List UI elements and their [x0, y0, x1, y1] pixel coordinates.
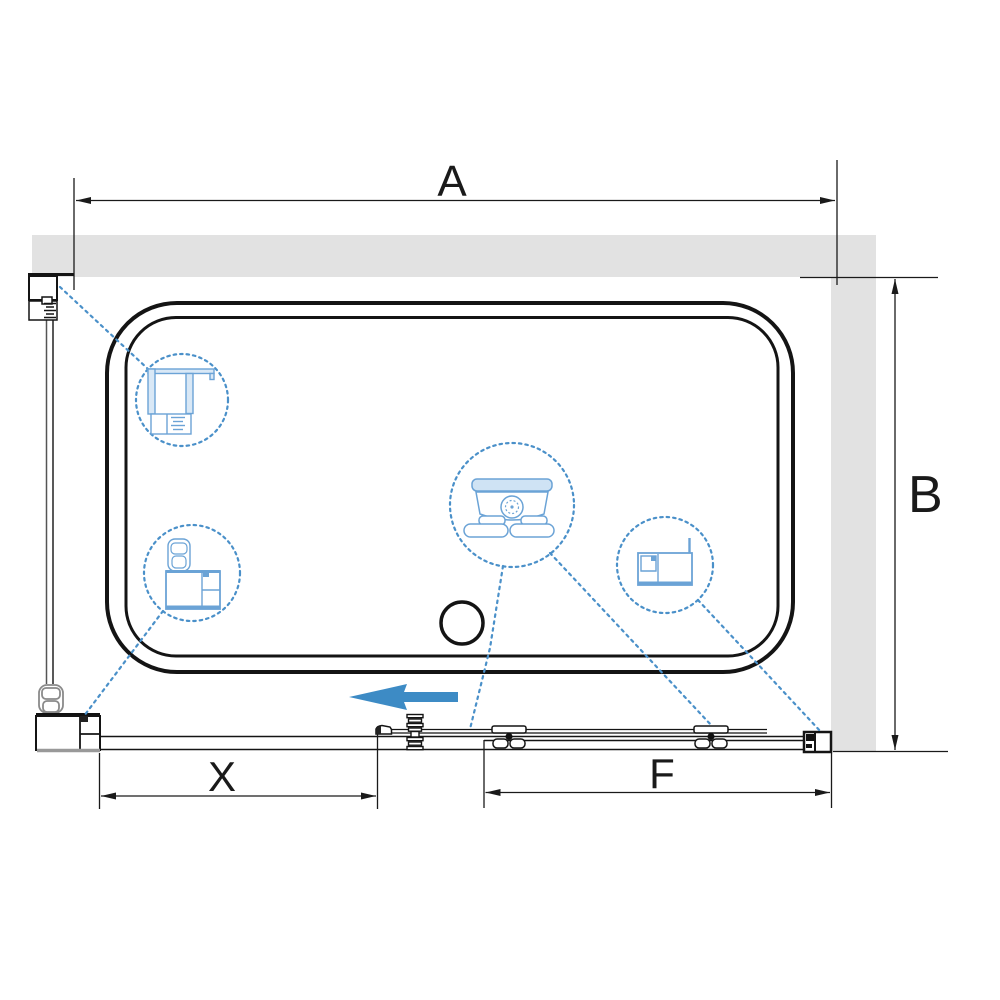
- callout-circles: [136, 354, 713, 621]
- leader-line: [60, 287, 148, 369]
- side-wall: [831, 277, 876, 752]
- arrowhead-icon: [486, 789, 501, 796]
- leader-line: [698, 600, 822, 733]
- leader-line: [470, 566, 503, 729]
- top-left-wall-profile: [28, 275, 74, 321]
- dimension-f-label: F: [649, 750, 675, 797]
- tray-outer-edge: [107, 303, 793, 672]
- bottom-left-corner-profile: [36, 685, 100, 751]
- arrowhead-icon: [76, 197, 91, 204]
- glass-clamp-gasket: [39, 685, 63, 713]
- arrowhead-icon: [820, 197, 835, 204]
- left-side-panel: [28, 275, 100, 751]
- door-guide-bracket: [376, 726, 392, 735]
- diagram-canvas: A B X F: [0, 0, 1000, 1000]
- shower-tray: [107, 303, 793, 672]
- adjustment-screw-icon: [407, 715, 423, 750]
- bottom-rail-detail-icon: [638, 538, 692, 585]
- slide-direction-arrow-icon: [349, 684, 458, 710]
- dimension-x-label: X: [208, 753, 236, 800]
- walls: [32, 235, 876, 752]
- arrowhead-icon: [101, 793, 116, 800]
- wall-profile-detail-icon: [148, 369, 214, 434]
- arrowhead-icon: [892, 735, 899, 750]
- drain-icon: [441, 602, 483, 644]
- bottom-right-wall-bracket: [804, 732, 831, 752]
- arrowhead-icon: [361, 793, 376, 800]
- bottom-track-assembly: [100, 715, 831, 753]
- shower-enclosure-drawing: A B X F: [0, 0, 1000, 1000]
- dimension-x: [100, 734, 378, 809]
- back-wall: [32, 235, 876, 277]
- leader-line: [84, 611, 163, 716]
- roller-carriage-detail-icon: [464, 479, 554, 537]
- dimension-a-label: A: [437, 157, 467, 206]
- corner-profile-detail-icon: [166, 539, 220, 609]
- dimension-b-label: B: [908, 466, 943, 524]
- arrowhead-icon: [892, 279, 899, 294]
- arrowhead-icon: [815, 789, 830, 796]
